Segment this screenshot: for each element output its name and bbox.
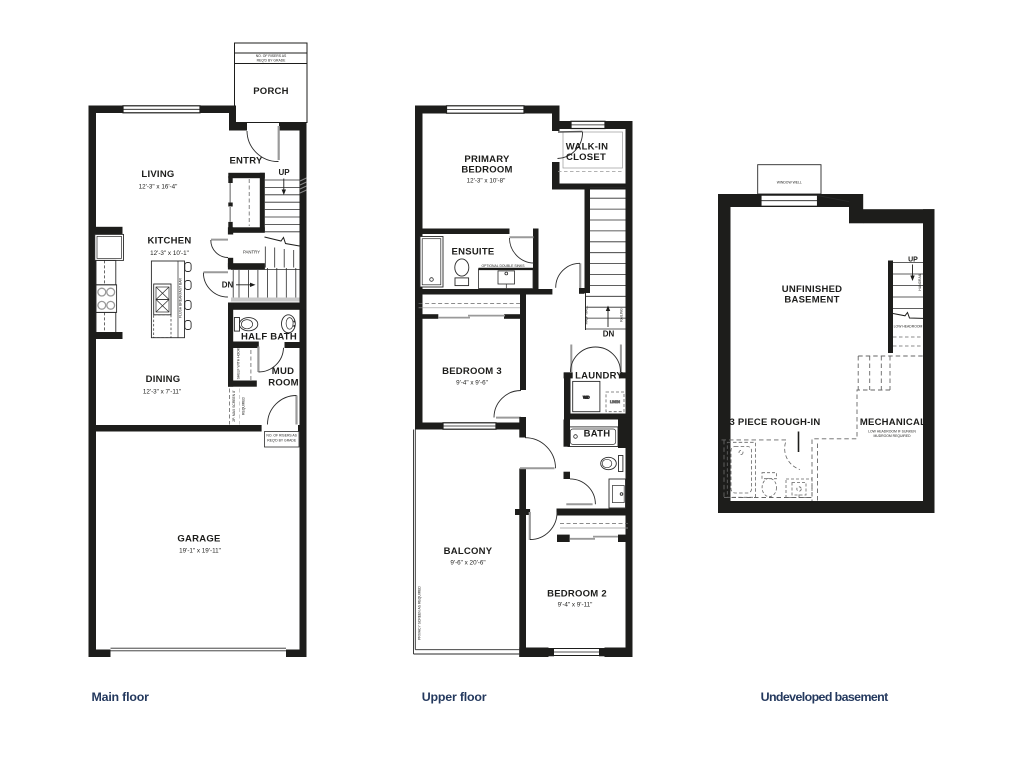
svg-text:BASEMENT: BASEMENT [784,295,839,306]
svg-text:KITCHEN: KITCHEN [148,236,192,247]
svg-text:LOW HEADROOM: LOW HEADROOM [894,325,923,329]
svg-text:PORCH: PORCH [253,86,289,97]
svg-text:Main floor: Main floor [92,690,150,704]
svg-text:REQ'D BY GRADE: REQ'D BY GRADE [257,59,287,63]
svg-text:UNFINISHED: UNFINISHED [782,284,843,295]
svg-text:9'-4" x 9'-11": 9'-4" x 9'-11" [558,602,593,609]
svg-text:12'-3" x 16'-4": 12'-3" x 16'-4" [139,184,178,191]
svg-text:GARAGE: GARAGE [177,534,220,545]
svg-text:9'-4" x 9'-6": 9'-4" x 9'-6" [456,380,488,387]
svg-text:HALF WALL: HALF WALL [585,306,589,325]
svg-text:BATH: BATH [584,429,611,440]
svg-text:REQ'D BY GRADE: REQ'D BY GRADE [267,439,297,443]
svg-text:REQUIRED: REQUIRED [242,397,246,415]
svg-text:Upper floor: Upper floor [422,690,487,704]
svg-text:LINEN: LINEN [610,400,621,404]
svg-text:FLUSH BREAKFAST BAR: FLUSH BREAKFAST BAR [179,278,183,318]
svg-text:BEDROOM: BEDROOM [461,165,512,176]
svg-text:LIVING: LIVING [141,169,174,180]
svg-text:WINDOW WELL: WINDOW WELL [777,181,802,185]
svg-text:WALK-IN: WALK-IN [566,142,608,153]
svg-text:3 PIECE ROUGH-IN: 3 PIECE ROUGH-IN [729,417,820,428]
svg-text:BEDROOM 3: BEDROOM 3 [442,366,502,377]
svg-text:Undeveloped basement: Undeveloped basement [761,690,889,704]
svg-text:W/D: W/D [583,396,590,400]
svg-text:DN: DN [222,281,234,290]
svg-text:DN: DN [603,330,615,339]
svg-text:NO. OF RISERS AS: NO. OF RISERS AS [256,54,287,58]
svg-text:ENTRY: ENTRY [229,156,263,167]
svg-text:ROOM: ROOM [268,378,299,389]
svg-text:HANDRAIL: HANDRAIL [918,273,922,290]
svg-text:PRIVACY SCREEN AS REQUIRED: PRIVACY SCREEN AS REQUIRED [418,586,422,640]
svg-text:PANTRY: PANTRY [243,250,260,255]
svg-text:UP: UP [278,168,290,177]
svg-text:LAUNDRY: LAUNDRY [575,371,623,382]
svg-text:DINING: DINING [146,374,181,385]
svg-text:2P. MAX SCREEN 8': 2P. MAX SCREEN 8' [232,390,236,422]
svg-text:12'-3" x 7'-11": 12'-3" x 7'-11" [143,389,181,396]
svg-text:12'-3" x 10'-1": 12'-3" x 10'-1" [150,250,189,257]
svg-text:HALF BATH: HALF BATH [241,332,297,343]
svg-text:MECHANICAL: MECHANICAL [860,417,926,428]
svg-text:MUDROOM REQUIRED: MUDROOM REQUIRED [873,434,911,438]
svg-text:OPTIONAL DOUBLE SINKS: OPTIONAL DOUBLE SINKS [481,264,525,268]
svg-text:12'-3" x 10'-8": 12'-3" x 10'-8" [467,178,506,185]
svg-text:PRIMARY: PRIMARY [464,154,510,165]
svg-text:BALCONY: BALCONY [444,546,493,557]
svg-text:SHELF WITH HOOKS: SHELF WITH HOOKS [237,345,241,379]
svg-text:RAILING: RAILING [619,308,623,322]
svg-text:19'-1" x 19'-11": 19'-1" x 19'-11" [179,548,221,555]
svg-text:CLOSET: CLOSET [566,152,606,163]
svg-text:ENSUITE: ENSUITE [452,247,495,258]
svg-text:LOW HEADROOM IF SUNKEN: LOW HEADROOM IF SUNKEN [868,430,916,434]
svg-text:NO. OF RISERS AS: NO. OF RISERS AS [266,434,297,438]
svg-text:BEDROOM 2: BEDROOM 2 [547,589,607,600]
svg-text:MUD: MUD [272,366,294,377]
svg-text:9'-6" x 20'-6": 9'-6" x 20'-6" [450,560,485,567]
